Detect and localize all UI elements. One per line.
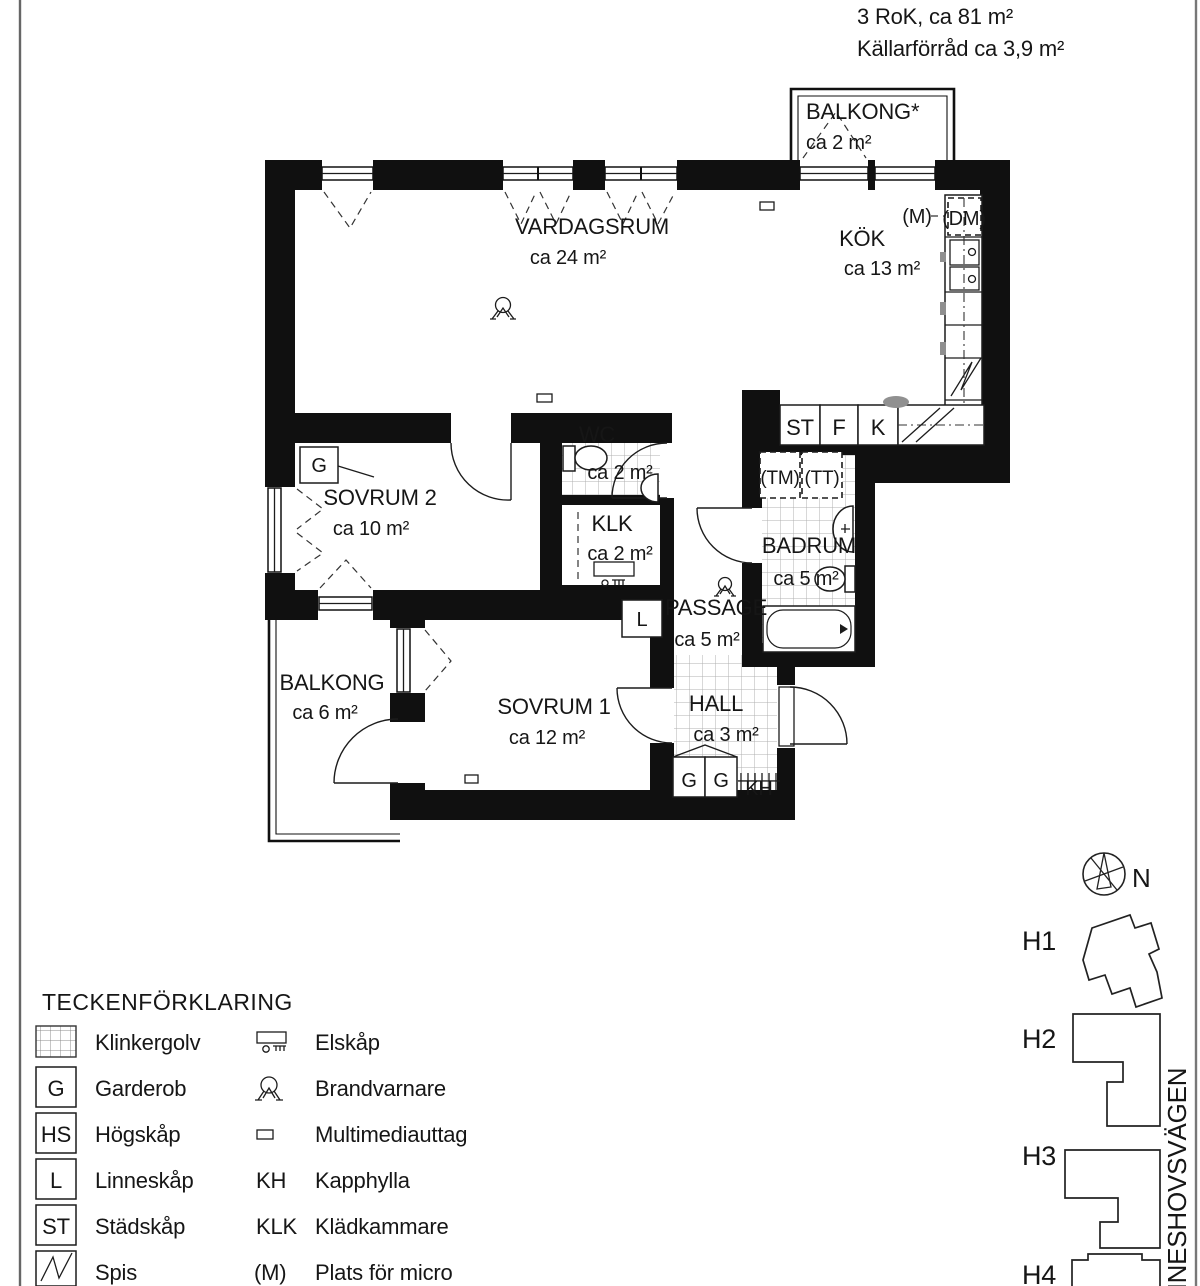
legend-label: Spis bbox=[95, 1260, 137, 1285]
tile-floor-icon bbox=[36, 1026, 76, 1057]
sovrum1-area: ca 12 m² bbox=[509, 727, 586, 749]
legend-abbr: G bbox=[48, 1076, 65, 1101]
floorplan-sheet: 3 RoK, ca 81 m² Källarförråd ca 3,9 m² bbox=[0, 0, 1200, 1286]
door-entrance bbox=[779, 687, 847, 746]
door-sovrum2 bbox=[451, 443, 511, 500]
legend-abbr: KH bbox=[256, 1168, 286, 1193]
building-label-h2: H2 bbox=[1022, 1024, 1056, 1054]
fridge-label: F bbox=[832, 415, 845, 440]
legend-label: Garderob bbox=[95, 1076, 186, 1101]
coat-rack-label: KH bbox=[745, 778, 772, 800]
washing-machine-label: (TM) bbox=[760, 468, 799, 489]
legend-heading: TECKENFÖRKLARING bbox=[42, 989, 293, 1015]
legend-label: Klinkergolv bbox=[95, 1030, 201, 1055]
legend-abbr: L bbox=[50, 1168, 62, 1193]
passage-area: ca 5 m² bbox=[674, 629, 740, 651]
balkong-name: BALKONG bbox=[280, 670, 385, 695]
site-plan: N H1 H2 H3 H4 NNESHOVSVÄGEN bbox=[1022, 853, 1192, 1286]
stadskap-label: ST bbox=[786, 415, 814, 440]
legend-label: Städskåp bbox=[95, 1214, 185, 1239]
wc-name: WC bbox=[579, 422, 616, 447]
building-label-h1: H1 bbox=[1022, 926, 1056, 956]
hall-name: HALL bbox=[689, 691, 743, 716]
micro-label: (M) bbox=[902, 206, 931, 228]
balkong-top-area: ca 2 m² bbox=[806, 132, 872, 154]
north-label: N bbox=[1132, 863, 1151, 893]
floorplan-canvas: 3 RoK, ca 81 m² Källarförråd ca 3,9 m² bbox=[0, 0, 1200, 1286]
smoke-detector-vardagsrum bbox=[490, 298, 516, 320]
legend-label: Kapphylla bbox=[315, 1168, 411, 1193]
legend-label: Klädkammare bbox=[315, 1214, 449, 1239]
vardagsrum-area: ca 24 m² bbox=[530, 247, 607, 269]
kok-name: KÖK bbox=[839, 226, 885, 251]
window-top-2 bbox=[503, 167, 573, 180]
sovrum2-area: ca 10 m² bbox=[333, 518, 410, 540]
street-name-label: NNESHOVSVÄGEN bbox=[1162, 1068, 1192, 1286]
smoke-detector-passage bbox=[714, 578, 736, 597]
door-sovrum1 bbox=[617, 688, 672, 743]
legend: TECKENFÖRKLARING Klinkergolv G Garderob … bbox=[36, 989, 467, 1286]
hall-wardrobe1-label: G bbox=[681, 770, 696, 792]
window-sovrum1-balcony bbox=[390, 628, 425, 693]
linen-cabinet-label: L bbox=[637, 609, 648, 631]
compass-icon bbox=[1083, 853, 1125, 895]
dishwasher-label: (DM) bbox=[942, 208, 986, 230]
badrum-area: ca 5 m² bbox=[773, 568, 839, 590]
legend-label: Linneskåp bbox=[95, 1168, 194, 1193]
wc-area: ca 2 m² bbox=[587, 462, 653, 484]
bathtub bbox=[763, 606, 855, 652]
multimedia-outlet-icon bbox=[537, 394, 552, 402]
freezer-label: K bbox=[871, 415, 886, 440]
sovrum2-name: SOVRUM 2 bbox=[323, 485, 436, 510]
legend-abbr: (M) bbox=[254, 1260, 286, 1285]
balcony-door-top bbox=[800, 167, 868, 180]
building-outline-h3 bbox=[1065, 1150, 1160, 1248]
apartment-size-text: 3 RoK, ca 81 m² bbox=[857, 4, 1013, 29]
legend-abbr: KLK bbox=[256, 1214, 298, 1239]
legend-label: Plats för micro bbox=[315, 1260, 453, 1285]
door-balcony-sovrum1 bbox=[334, 719, 398, 783]
legend-label: Högskåp bbox=[95, 1122, 180, 1147]
apartment-header: 3 RoK, ca 81 m² Källarförråd ca 3,9 m² bbox=[857, 4, 1064, 61]
multimedia-outlet-icon bbox=[465, 775, 478, 783]
dryer-label: (TT) bbox=[804, 468, 839, 489]
elskap-icon bbox=[257, 1032, 286, 1052]
passage-name: PASSAGE bbox=[665, 595, 767, 620]
badrum-name: BADRUM bbox=[762, 533, 856, 558]
door-badrum bbox=[697, 508, 752, 563]
multimedia-outlet-legend-icon bbox=[257, 1130, 273, 1139]
faucet bbox=[883, 396, 909, 408]
window-left-sovrum2 bbox=[265, 487, 295, 573]
multimedia-outlet-icon bbox=[760, 202, 774, 210]
storage-size-text: Källarförråd ca 3,9 m² bbox=[857, 36, 1064, 61]
building-outline-h1 bbox=[1083, 915, 1162, 1007]
balkong-area: ca 6 m² bbox=[292, 702, 358, 724]
legend-abbr: ST bbox=[42, 1214, 70, 1239]
hall-wardrobe2-label: G bbox=[713, 770, 728, 792]
legend-label: Elskåp bbox=[315, 1030, 380, 1055]
balkong-top-name: BALKONG* bbox=[806, 99, 920, 124]
sovrum2-wardrobe-label: G bbox=[311, 455, 326, 477]
elskap-symbol-klk bbox=[594, 562, 634, 586]
vardagsrum-name: VARDAGSRUM bbox=[515, 214, 669, 239]
smoke-detector-icon bbox=[255, 1077, 283, 1100]
legend-abbr: HS bbox=[41, 1122, 71, 1147]
window-sovrum2-balcony bbox=[318, 590, 373, 620]
window-top-3 bbox=[605, 167, 677, 180]
klk-area: ca 2 m² bbox=[587, 543, 653, 565]
legend-label: Multimediauttag bbox=[315, 1122, 467, 1147]
building-outline-h2 bbox=[1073, 1014, 1160, 1126]
klk-name: KLK bbox=[592, 511, 634, 536]
legend-label: Brandvarnare bbox=[315, 1076, 446, 1101]
building-label-h3: H3 bbox=[1022, 1141, 1056, 1171]
kok-area: ca 13 m² bbox=[844, 258, 921, 280]
window-top-1 bbox=[322, 167, 373, 180]
balcony-left-parapet bbox=[269, 612, 400, 841]
stove-legend-icon bbox=[36, 1251, 76, 1286]
building-label-h4: H4 bbox=[1022, 1260, 1056, 1286]
hall-area: ca 3 m² bbox=[693, 724, 759, 746]
window-top-4 bbox=[875, 167, 935, 180]
sovrum1-name: SOVRUM 1 bbox=[497, 694, 610, 719]
building-outline-h4 bbox=[1072, 1254, 1160, 1286]
